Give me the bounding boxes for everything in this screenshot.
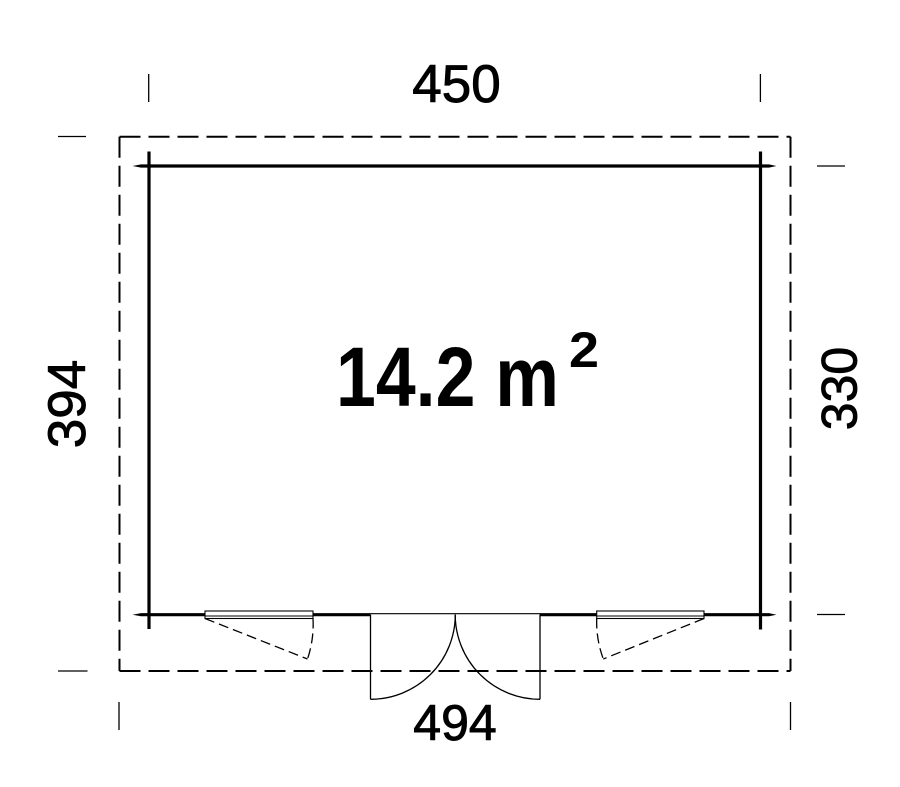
svg-text:394: 394 (38, 360, 97, 448)
svg-text:450: 450 (412, 55, 500, 114)
svg-text:494: 494 (413, 695, 496, 751)
svg-text:330: 330 (812, 347, 868, 430)
svg-text:2: 2 (569, 322, 599, 378)
svg-text:14.2 m: 14.2 m (336, 330, 559, 424)
